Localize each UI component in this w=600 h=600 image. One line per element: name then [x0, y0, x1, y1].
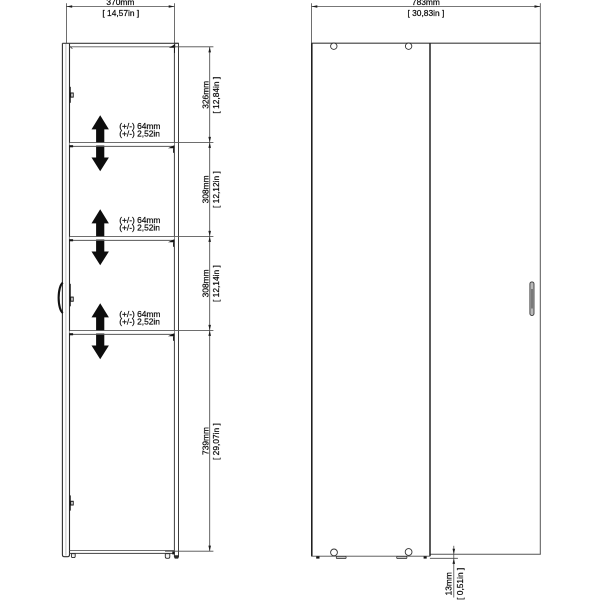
svg-text:[ 12,12in ]: [ 12,12in ]: [211, 171, 221, 208]
svg-text:[ 12,14in ]: [ 12,14in ]: [211, 265, 221, 302]
svg-text:[ 30,83in ]: [ 30,83in ]: [408, 8, 445, 18]
svg-text:739mm: 739mm: [200, 427, 210, 455]
svg-text:[ 29,07in ]: [ 29,07in ]: [211, 423, 221, 460]
svg-text:370mm: 370mm: [106, 0, 134, 7]
svg-text:(+/-) 2,52in: (+/-) 2,52in: [119, 223, 160, 233]
svg-text:308mm: 308mm: [200, 175, 210, 203]
svg-text:[ 12,84in ]: [ 12,84in ]: [211, 77, 221, 114]
svg-text:326mm: 326mm: [200, 81, 210, 109]
svg-text:[ 14,57in ]: [ 14,57in ]: [102, 8, 139, 18]
svg-text:13mm: 13mm: [443, 572, 453, 595]
svg-text:(+/-) 2,52in: (+/-) 2,52in: [119, 129, 160, 139]
svg-text:783mm: 783mm: [412, 0, 440, 7]
svg-text:(+/-) 2,52in: (+/-) 2,52in: [119, 317, 160, 327]
svg-text:308mm: 308mm: [200, 269, 210, 297]
svg-text:[ 0,51in ]: [ 0,51in ]: [455, 568, 465, 600]
